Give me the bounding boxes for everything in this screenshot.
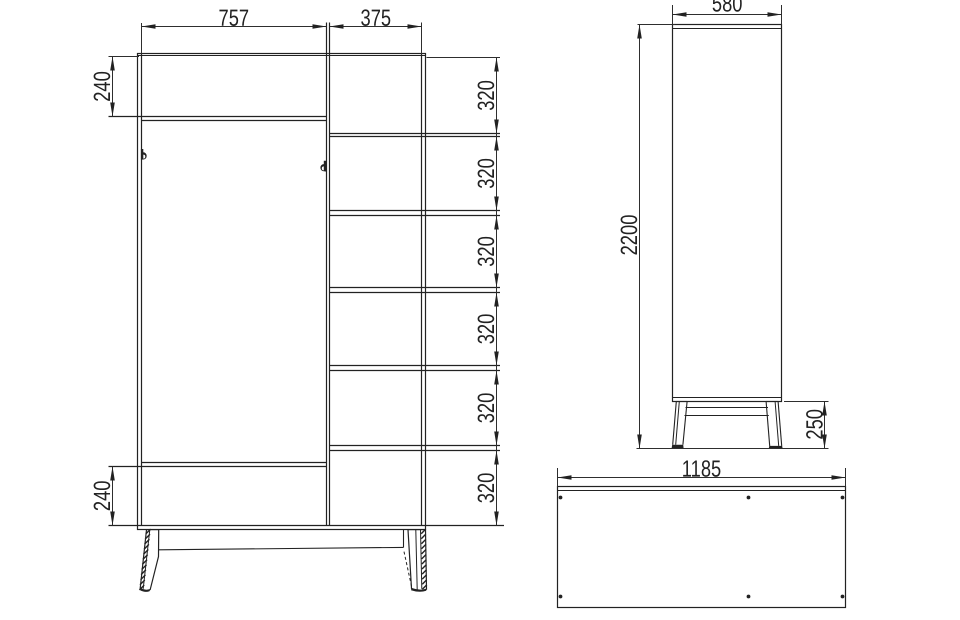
svg-text:240: 240: [89, 71, 115, 102]
svg-text:320: 320: [473, 158, 499, 189]
svg-text:320: 320: [473, 236, 499, 267]
svg-text:320: 320: [473, 314, 499, 345]
svg-text:320: 320: [473, 393, 499, 424]
svg-text:580: 580: [712, 0, 743, 17]
svg-text:757: 757: [219, 5, 250, 31]
svg-text:1185: 1185: [682, 456, 721, 482]
svg-text:240: 240: [89, 481, 115, 512]
svg-text:2200: 2200: [616, 215, 642, 256]
svg-text:320: 320: [473, 473, 499, 504]
svg-text:375: 375: [361, 5, 392, 31]
svg-text:250: 250: [801, 409, 827, 440]
svg-text:320: 320: [473, 80, 499, 111]
